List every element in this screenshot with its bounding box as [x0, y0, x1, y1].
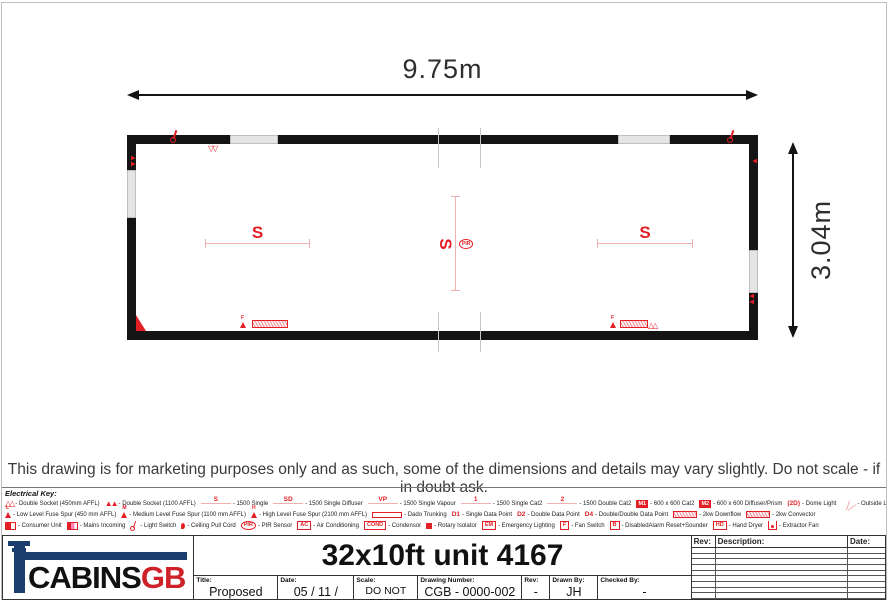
consumer-unit-icon — [5, 522, 16, 530]
key-item-2kw-convector: - 2kw Convector — [746, 511, 815, 518]
width-dimension-label: 9.75m — [128, 54, 757, 85]
extractor-fan-icon — [768, 521, 777, 530]
revision-row — [692, 593, 885, 599]
mains-incoming-icon — [67, 522, 78, 530]
key-item-dado-trunking: - Dado Trunking — [372, 512, 447, 518]
field-drawn-by: Drawn By:JH — [550, 576, 598, 599]
module-joint-line — [438, 128, 439, 168]
key-item-double-data-point: D2- Double Data Point — [517, 511, 580, 518]
cabinsgb-logo: CABINSGB — [3, 536, 194, 599]
key-item-fan-switch: F- Fan Switch — [560, 521, 605, 530]
key-item-low-fuse-spur: L- Low Level Fuse Spur (450 mm AFFL) — [5, 512, 116, 518]
key-item-disabled-alarm: B- DisabledAlarm Reset+Sounder — [610, 521, 708, 530]
key-item-pir-sensor: PIR- PIR Sensor — [241, 521, 293, 530]
fitting-line-icon: S — [201, 503, 231, 504]
fuse-spur-low-icon: L — [5, 512, 11, 518]
field-checked-by: Checked By:- — [598, 576, 690, 599]
key-item-1500-single-cat2: 1- 1500 Single Cat2 — [461, 501, 543, 507]
key-item-emergency-lighting: EM- Emergency Lighting — [482, 521, 555, 530]
f-box-icon: F — [560, 521, 569, 530]
field-date: Date:05 / 11 / 2025 — [278, 576, 354, 599]
field-scale: Scale:DO NOT SCALE — [354, 576, 418, 599]
arrow-up-icon — [788, 142, 798, 154]
window-right-wall — [749, 250, 758, 293]
convector-heater-icon — [746, 511, 770, 518]
drawing-title: 32x10ft unit 4167 — [194, 536, 690, 575]
fuse-spur-icon: F — [610, 322, 616, 328]
title-block-fields: Title:Proposed Layout Date:05 / 11 / 202… — [194, 575, 690, 599]
key-item-1500-single: S- 1500 Single — [201, 501, 268, 507]
pir-sensor-icon: PIR — [241, 521, 256, 530]
b-box-icon: B — [610, 521, 620, 530]
em-box-icon: EM — [482, 521, 496, 530]
double-socket-icon: ▲▲ — [748, 294, 756, 306]
logo-text: CABINSGB — [28, 560, 185, 596]
cond-box-icon: COND — [364, 521, 386, 530]
d1-data-icon: D1 — [452, 511, 460, 518]
window-left-wall — [127, 170, 136, 218]
fitting-line-icon: SD — [273, 503, 303, 504]
key-item-dome-light: 2D- Dome Light — [787, 500, 836, 507]
light-switch-icon — [130, 521, 138, 531]
field-rev: Rev:- — [522, 576, 550, 599]
key-item-600-diffuser-prism: M2- 600 x 600 Diffuser/Prism — [699, 500, 782, 508]
key-item-light-switch: - Light Switch — [130, 521, 176, 531]
key-item-extractor-fan: - Extractor Fan — [768, 521, 819, 530]
double-socket-icon: ▽▽ — [208, 145, 216, 153]
key-item-double-socket-1100: ▲▲- Double Socket (1100 AFFL) — [105, 500, 196, 508]
module-joint-line — [438, 312, 439, 352]
logo-gb-text: GB — [141, 560, 186, 595]
electrical-key: Electrical Key: △△- Double Socket (450mm… — [2, 487, 886, 534]
key-item-double-socket-450: △△- Double Socket (450mm AFFL) — [5, 500, 100, 508]
field-drawing-number: Drawing Number:CGB - 0000-002 — [418, 576, 522, 599]
outside-light-icon — [841, 500, 855, 508]
key-item-consumer-unit: - Consumer Unit — [5, 522, 62, 530]
height-dimension-line — [792, 148, 794, 332]
consumer-unit-icon — [136, 315, 146, 331]
key-row-3: - Consumer Unit - Mains Incoming - Light… — [5, 520, 883, 531]
light-switch-icon — [727, 130, 735, 143]
key-item-1500-single-diffuser: SD- 1500 Single Diffuser — [273, 501, 363, 507]
key-item-ceiling-pull-cord: - Ceiling Pull Cord — [181, 523, 235, 529]
double-socket-filled-icon: ▲▲ — [105, 500, 117, 508]
light-fitting-right — [597, 243, 693, 244]
hd-box-icon: HD — [713, 521, 727, 530]
double-socket-icon: △△ — [648, 322, 656, 330]
title-block-center: 32x10ft unit 4167 Title:Proposed Layout … — [194, 536, 690, 599]
drawing-sheet: 9.75m 3.04m ▽▽ ▲▲ ▲ ▲▲ △△ F F S S PIR S — [0, 0, 888, 600]
light-fitting-center-label: S — [435, 235, 455, 253]
key-item-hand-dryer: HD- Hand Dryer — [713, 521, 763, 530]
key-item-outside-light: - Outside Light — [841, 500, 886, 508]
pir-sensor-icon: PIR — [459, 239, 473, 249]
module-joint-line — [480, 312, 481, 352]
arrow-left-icon — [127, 90, 139, 100]
revision-table-header: Rev: Description: Date: — [692, 536, 885, 548]
key-item-1500-single-vapour: VP- 1500 Single Vapour — [368, 501, 456, 507]
key-item-medium-fuse-spur: M- Medium Level Fuse Spur (1100 mm AFFL) — [121, 512, 246, 518]
ac-box-icon: AC — [297, 521, 311, 530]
title-block: CABINSGB 32x10ft unit 4167 Title:Propose… — [2, 535, 886, 600]
key-item-2kw-downflow: - 2kw Downflow — [673, 511, 741, 518]
key-item-600-cat2: M1- 600 x 600 Cat2 — [636, 500, 694, 508]
downflow-heater-icon — [673, 511, 697, 518]
rotary-isolator-icon — [426, 523, 432, 529]
light-fitting-right-label: S — [597, 223, 693, 243]
window-top-left — [230, 135, 278, 144]
height-dimension-label: 3.04m — [806, 150, 837, 330]
dome-light-icon: 2D — [787, 500, 800, 507]
fitting-line-icon: 1 — [461, 503, 491, 504]
light-fitting-center — [455, 196, 456, 291]
key-row-2: L- Low Level Fuse Spur (450 mm AFFL) M- … — [5, 509, 883, 520]
double-socket-icon: ▲▲ — [129, 154, 137, 166]
key-item-condensor: COND- Condensor — [364, 521, 421, 530]
arrow-right-icon — [746, 90, 758, 100]
fitting-line-icon: 2 — [547, 503, 577, 504]
key-item-air-conditioning: AC- Air Conditioning — [297, 521, 359, 530]
double-socket-icon: ▲ — [751, 159, 759, 165]
revision-table: Rev: Description: Date: — [691, 536, 885, 599]
width-dimension-line — [133, 94, 752, 96]
tsquare-icon — [25, 552, 187, 560]
key-item-1500-double-cat2: 2- 1500 Double Cat2 — [547, 501, 631, 507]
key-row-1: △△- Double Socket (450mm AFFL) ▲▲- Doubl… — [5, 498, 883, 509]
fuse-spur-medium-icon: M — [121, 512, 127, 518]
d4-data-icon: D4 — [585, 511, 593, 518]
window-top-right — [618, 135, 670, 144]
key-item-rotary-isolator: - Rotary Isolator — [426, 523, 477, 529]
field-title: Title:Proposed Layout — [194, 576, 278, 599]
m2-box-icon: M2 — [699, 500, 711, 508]
arrow-down-icon — [788, 326, 798, 338]
convector-heater-icon — [252, 320, 288, 328]
fuse-spur-high-icon: H — [251, 512, 257, 518]
dado-trunking-icon — [372, 512, 402, 518]
convector-heater-icon — [620, 320, 648, 328]
d2-data-icon: D2 — [517, 511, 525, 518]
key-item-high-fuse-spur: H- High Level Fuse Spur (2100 mm AFFL) — [251, 512, 367, 518]
fuse-spur-icon: F — [240, 322, 246, 328]
light-switch-icon — [170, 130, 178, 143]
light-fitting-left-label: S — [205, 223, 310, 243]
key-item-single-data-point: D1- Single Data Point — [452, 511, 512, 518]
light-fitting-left — [205, 243, 310, 244]
fitting-line-icon: VP — [368, 503, 398, 504]
m1-box-icon: M1 — [636, 500, 648, 508]
electrical-key-title: Electrical Key: — [5, 489, 883, 498]
ceiling-pull-cord-icon — [181, 523, 185, 529]
module-joint-line — [480, 128, 481, 168]
logo-cabins-text: CABINS — [28, 560, 141, 595]
tsquare-icon — [14, 541, 25, 593]
key-item-mains-incoming: - Mains Incoming — [67, 522, 126, 530]
floor-plan: ▽▽ ▲▲ ▲ ▲▲ △△ F F S S PIR S — [127, 135, 758, 340]
key-item-double-double-data-point: D4- Double/Double Data Point — [585, 511, 668, 518]
